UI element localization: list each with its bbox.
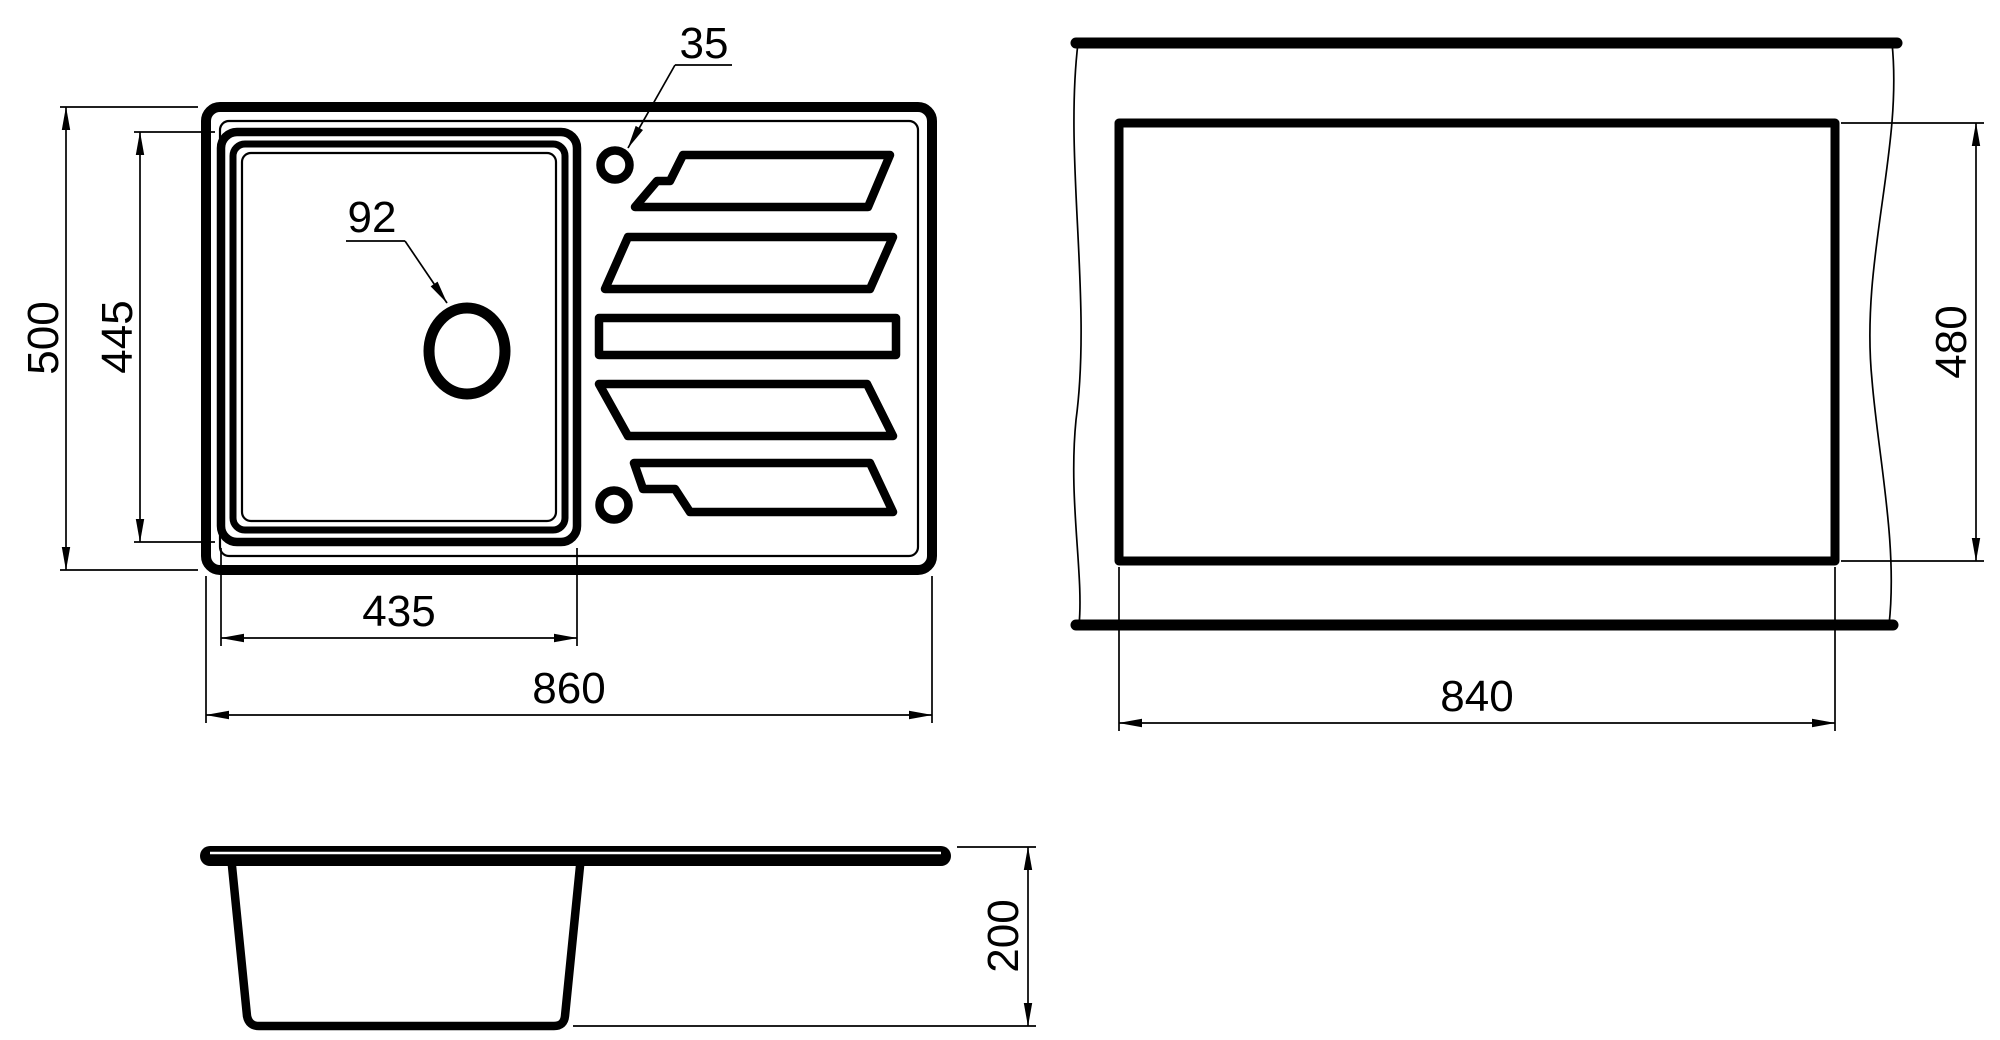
drain-hole-label: 92 bbox=[348, 193, 397, 242]
slat-5 bbox=[634, 463, 893, 512]
dim-bowl-width: 435 bbox=[221, 548, 577, 646]
dim-bowl-width-label: 435 bbox=[362, 587, 435, 636]
slat-2 bbox=[605, 237, 893, 289]
cutout-view: 480 840 bbox=[1074, 43, 1984, 731]
sink-technical-drawing: 92 35 500 445 435 bbox=[0, 0, 2000, 1040]
sink-top-flange bbox=[200, 846, 951, 866]
bowl-rim-inner-line bbox=[242, 153, 556, 521]
tap-hole-label: 35 bbox=[680, 19, 729, 68]
bowl-rim-outer bbox=[221, 132, 577, 542]
slat-1 bbox=[635, 155, 890, 207]
leader-arrow-line bbox=[405, 241, 447, 303]
break-line-right bbox=[1870, 43, 1894, 625]
leader-tap-hole: 35 bbox=[628, 19, 732, 148]
drainboard-slats bbox=[599, 155, 896, 512]
dim-depth: 200 bbox=[573, 847, 1036, 1026]
dim-cutout-width: 840 bbox=[1119, 567, 1835, 731]
bowl-rim-middle bbox=[233, 144, 565, 530]
side-view: 200 bbox=[200, 846, 1036, 1026]
leader-drain-hole: 92 bbox=[346, 193, 447, 303]
plan-view: 92 35 500 445 435 bbox=[19, 19, 932, 723]
cutout-rect bbox=[1119, 123, 1835, 561]
bowl-profile bbox=[232, 866, 580, 1026]
dim-cutout-width-label: 840 bbox=[1440, 672, 1513, 721]
dim-cutout-height-label: 480 bbox=[1927, 305, 1976, 378]
sink-outer-edge bbox=[206, 107, 932, 570]
tap-hole-top bbox=[601, 151, 630, 180]
sink-inner-edge-line bbox=[220, 121, 918, 556]
drain-hole bbox=[429, 308, 505, 394]
break-line-left bbox=[1074, 43, 1081, 625]
dim-overall-width: 860 bbox=[206, 576, 932, 723]
dim-overall-height-label: 500 bbox=[19, 301, 68, 374]
dim-bowl-height-label: 445 bbox=[93, 300, 142, 373]
tap-hole-bottom bbox=[600, 491, 629, 520]
dim-bowl-height: 445 bbox=[93, 132, 215, 542]
slat-4 bbox=[599, 384, 893, 436]
slat-3 bbox=[599, 318, 896, 355]
dim-cutout-height: 480 bbox=[1841, 123, 1984, 561]
dim-overall-width-label: 860 bbox=[532, 664, 605, 713]
dim-depth-label: 200 bbox=[979, 899, 1028, 972]
